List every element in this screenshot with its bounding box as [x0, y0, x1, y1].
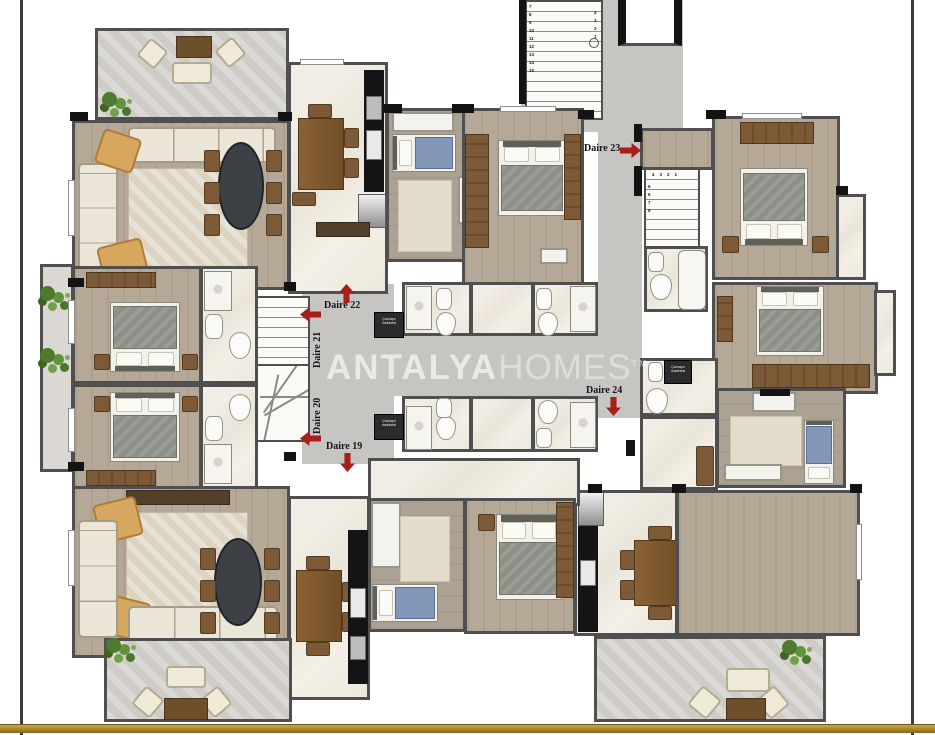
duplex-stair-numbers-top: 4321 [652, 172, 677, 177]
entry-23 [640, 128, 714, 170]
main-staircase [525, 0, 603, 120]
stair-column [589, 38, 599, 48]
fridge [578, 492, 604, 526]
sideboard [316, 222, 370, 237]
dining-table [218, 142, 264, 230]
single-bed [372, 584, 438, 622]
winder-staircase-upper [250, 296, 310, 366]
frame-line-right [911, 0, 914, 735]
living-room-24 [676, 490, 860, 636]
double-bed [496, 514, 562, 600]
cabinet [696, 446, 714, 486]
wardrobe [392, 112, 454, 132]
wardrobe [86, 470, 156, 486]
patio-loveseat [166, 666, 206, 688]
double-bed [740, 168, 808, 246]
stove [350, 636, 366, 660]
unit-label-daire-21: Daire 21 [312, 322, 323, 368]
washer-label: Çamaşır makinesi [382, 317, 396, 325]
dresser [717, 296, 733, 342]
washing-machine: Çamaşır makinesi [374, 414, 404, 440]
unit-label-daire-20: Daire 20 [312, 388, 323, 434]
kitchen-sink [350, 588, 366, 618]
stove [366, 96, 382, 120]
double-bed [110, 392, 180, 462]
nightstand [94, 396, 110, 412]
duplex-stair-numbers-left: 5678 [648, 184, 651, 213]
bench [540, 248, 568, 264]
dining-chair [200, 548, 216, 570]
bench [724, 464, 782, 481]
monitor [760, 389, 790, 396]
washer-label: Çamaşır makinesi [671, 365, 685, 373]
watermark-light: HOMES [498, 348, 631, 387]
dining-chair [264, 612, 280, 634]
watermark-tm: TM [632, 358, 649, 368]
kitchen-chair [306, 642, 330, 656]
washing-machine: Çamaşır makinesi [374, 312, 404, 338]
wardrobe [556, 502, 574, 598]
wardrobe [465, 134, 489, 248]
winder-staircase-lower [250, 364, 310, 442]
gold-bottom-bar [0, 724, 935, 733]
bathtub [678, 250, 706, 310]
shower [570, 402, 596, 448]
plant [40, 348, 55, 363]
stair-numbers-right: 4321 [594, 10, 597, 39]
dining-chair [204, 182, 220, 204]
duplex-staircase [644, 168, 700, 248]
patio-table [726, 698, 766, 720]
kitchen-table [298, 118, 344, 190]
double-bed [110, 302, 180, 372]
washer-label: Çamaşır makinesi [382, 419, 396, 427]
dining-chair [266, 214, 282, 236]
single-bed [392, 134, 456, 172]
kitchen-chair [306, 556, 330, 570]
double-bed [756, 286, 824, 356]
hallway-middle [470, 282, 534, 336]
kitchen-sink [580, 560, 596, 586]
nightstand [182, 354, 198, 370]
bath-sink [205, 314, 223, 339]
patio-loveseat [726, 668, 770, 692]
kitchen-table [634, 540, 680, 606]
sofa [78, 520, 118, 638]
plant [106, 638, 121, 653]
plant [102, 92, 117, 107]
dining-table [214, 538, 262, 626]
floor-plan: 789101112131415 4321 1617 [0, 0, 935, 735]
bath-sink [536, 288, 552, 310]
washing-machine: Çamaşır makinesi [664, 360, 692, 384]
single-bed [804, 420, 834, 484]
hallway-middle-lower [470, 396, 534, 452]
stair-numbers-left: 789101112131415 [529, 4, 534, 73]
patio-table [176, 36, 212, 58]
unit-label-daire-23: Daire 23 [584, 143, 620, 154]
shower [204, 271, 232, 311]
bath-sink [648, 362, 663, 382]
bath-sink [436, 288, 452, 310]
plant [40, 286, 55, 301]
bath-sink [205, 416, 223, 441]
dining-chair [264, 548, 280, 570]
frame-line-left [20, 0, 23, 735]
rug [398, 180, 452, 252]
shower [406, 286, 432, 330]
kitchen-chair [648, 526, 672, 540]
unit-label-daire-19: Daire 19 [326, 441, 362, 452]
dining-chair [200, 580, 216, 602]
nightstand [478, 514, 495, 531]
kitchen-chair [620, 580, 635, 600]
tv-console [126, 490, 230, 505]
rug [400, 516, 450, 582]
dining-chair [204, 214, 220, 236]
kitchen-chair [620, 550, 635, 570]
nightstand [94, 354, 110, 370]
stair-shaft [618, 0, 682, 46]
kitchen-chair [344, 158, 359, 178]
nightstand [812, 236, 829, 253]
patio-loveseat [172, 62, 212, 84]
wardrobe [86, 272, 156, 288]
antalya-homes-watermark: ANTALYAHOMESTM [326, 348, 649, 388]
dining-chair [266, 182, 282, 204]
dining-chair [200, 612, 216, 634]
rug [730, 416, 802, 466]
balcony-23 [836, 194, 866, 280]
nightstand [182, 396, 198, 412]
dining-chair [204, 150, 220, 172]
watermark-bold: ANTALYA [326, 348, 498, 387]
bath-sink [648, 252, 664, 272]
kitchen-chair [344, 128, 359, 148]
dresser [564, 134, 581, 220]
patio-table [164, 698, 208, 720]
bath-sink [436, 398, 452, 418]
wardrobe [740, 122, 814, 144]
kitchen-chair [648, 606, 672, 620]
bath-sink [536, 428, 552, 448]
nightstand [722, 236, 739, 253]
unit-label-daire-22: Daire 22 [324, 300, 360, 311]
shower [570, 286, 596, 332]
dining-chair [264, 580, 280, 602]
wardrobe [371, 502, 401, 568]
kitchen-table [296, 570, 342, 642]
kitchen-sink [366, 130, 382, 160]
shower [406, 406, 432, 450]
kitchen-chair [308, 104, 332, 118]
balcony-24-a [874, 290, 896, 376]
plant [782, 640, 797, 655]
kitchen-chair [292, 192, 316, 206]
shower [204, 444, 232, 484]
dining-chair [266, 150, 282, 172]
double-bed [498, 140, 566, 216]
wardrobe [752, 364, 870, 388]
